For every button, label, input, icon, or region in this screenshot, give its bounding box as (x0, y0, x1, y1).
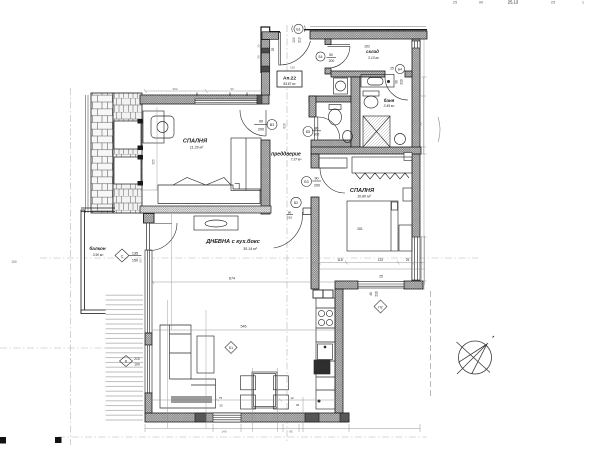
svg-text:305: 305 (152, 159, 156, 165)
svg-text:25,13: 25,13 (508, 0, 519, 5)
svg-text:45: 45 (296, 403, 300, 407)
svg-text:90: 90 (419, 122, 423, 126)
svg-text:210: 210 (375, 291, 379, 297)
svg-text:150: 150 (132, 259, 138, 263)
svg-text:25: 25 (390, 67, 394, 71)
svg-text:балкон: балкон (89, 245, 105, 251)
svg-text:816: 816 (283, 123, 287, 129)
svg-text:292: 292 (172, 87, 177, 91)
svg-text:100: 100 (134, 363, 140, 367)
svg-text:СПАЛНЯ: СПАЛНЯ (350, 188, 375, 194)
svg-text:П2: П2 (378, 305, 382, 309)
svg-text:склад: склад (366, 49, 379, 54)
svg-text:3.90 м²: 3.90 м² (93, 253, 105, 257)
svg-text:210: 210 (287, 216, 292, 220)
svg-text:10.80 м²: 10.80 м² (357, 195, 371, 199)
svg-text:7.37 м²: 7.37 м² (291, 158, 303, 162)
svg-text:25: 25 (453, 0, 458, 5)
svg-text:75: 75 (219, 396, 223, 400)
svg-text:85: 85 (289, 430, 293, 434)
svg-text:11.29 м²: 11.29 м² (190, 146, 204, 150)
svg-text:200: 200 (258, 128, 264, 132)
svg-text:200: 200 (329, 59, 335, 63)
svg-text:283: 283 (364, 45, 370, 49)
svg-text:3.49 м²: 3.49 м² (384, 104, 396, 108)
svg-text:83.67 м²: 83.67 м² (283, 82, 295, 86)
svg-text:25: 25 (551, 0, 556, 5)
svg-text:3.13 м²: 3.13 м² (368, 56, 380, 60)
svg-text:546: 546 (241, 325, 247, 329)
svg-text:Ап.22: Ап.22 (283, 76, 296, 82)
svg-text:Б1: Б1 (296, 27, 300, 31)
svg-text:25: 25 (379, 275, 383, 279)
svg-text:90: 90 (315, 177, 319, 181)
svg-text:90: 90 (259, 120, 263, 124)
svg-text:200: 200 (314, 184, 320, 188)
svg-text:50: 50 (329, 53, 333, 57)
svg-text:50: 50 (139, 259, 143, 263)
svg-text:Б2: Б2 (294, 201, 298, 205)
svg-text:В3: В3 (304, 180, 308, 184)
svg-text:90: 90 (257, 55, 261, 59)
svg-text:135: 135 (132, 252, 138, 256)
svg-text:200: 200 (314, 133, 320, 137)
svg-text:210: 210 (400, 79, 404, 85)
svg-text:25: 25 (406, 258, 410, 262)
svg-text:35.14 м²: 35.14 м² (243, 247, 257, 251)
svg-text:25: 25 (271, 48, 275, 52)
svg-text:Б1: Б1 (229, 346, 233, 350)
svg-text:150: 150 (11, 260, 17, 264)
svg-text:Б5: Б5 (306, 130, 310, 134)
svg-text:В3: В3 (270, 123, 274, 127)
svg-text:С: С (121, 254, 124, 258)
svg-text:210: 210 (298, 37, 302, 43)
svg-text:25: 25 (257, 44, 261, 48)
svg-text:190: 190 (290, 66, 295, 70)
svg-text:140: 140 (221, 430, 226, 434)
svg-text:40: 40 (369, 292, 373, 296)
svg-text:100: 100 (292, 37, 296, 43)
svg-text:90: 90 (230, 87, 234, 91)
svg-text:СПАЛНЯ: СПАЛНЯ (183, 139, 208, 145)
svg-text:ДНЕВНА с кух.бокс: ДНЕВНА с кух.бокс (205, 238, 261, 245)
svg-text:90: 90 (479, 0, 484, 5)
svg-text:674: 674 (229, 277, 235, 281)
svg-text:118: 118 (337, 258, 343, 262)
svg-text:132: 132 (378, 258, 384, 262)
svg-text:210: 210 (134, 357, 140, 361)
svg-text:Б4: Б4 (398, 68, 402, 72)
svg-text:281: 281 (357, 227, 363, 231)
svg-text:90: 90 (395, 80, 399, 84)
svg-text:80: 80 (288, 211, 292, 215)
svg-text:Б4: Б4 (318, 55, 322, 59)
svg-text:баня: баня (384, 98, 395, 103)
svg-text:80: 80 (315, 127, 319, 131)
svg-text:В: В (125, 360, 127, 364)
svg-text:25: 25 (219, 404, 223, 408)
svg-text:12: 12 (290, 396, 294, 400)
